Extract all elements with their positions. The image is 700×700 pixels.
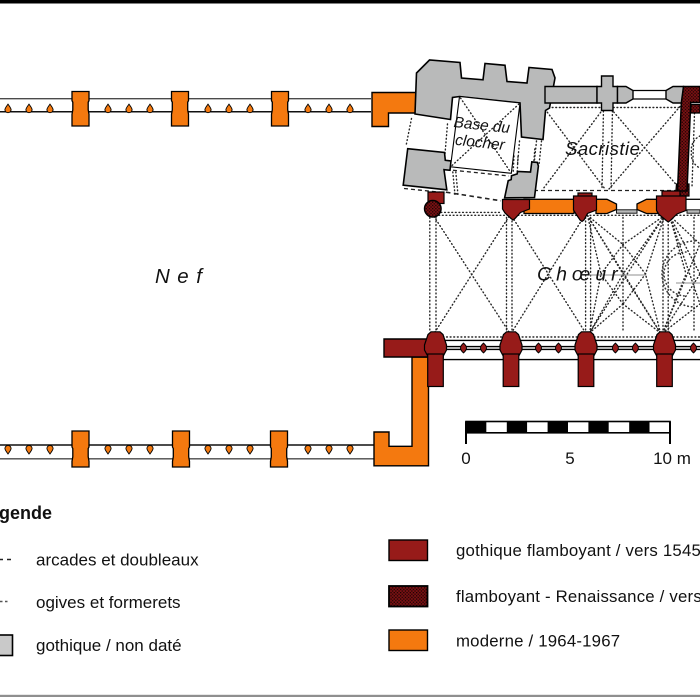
svg-text:Légende: Légende <box>0 503 52 523</box>
svg-text:5: 5 <box>565 449 574 468</box>
svg-text:Chœur: Chœur <box>537 264 623 286</box>
svg-text:0: 0 <box>461 449 470 468</box>
svg-text:Sacristie: Sacristie <box>565 138 640 159</box>
svg-text:10 m: 10 m <box>653 449 691 468</box>
svg-text:gothique flamboyant / vers 154: gothique flamboyant / vers 1545 <box>456 541 700 560</box>
svg-text:arcades et doubleaux: arcades et doubleaux <box>36 551 199 570</box>
svg-text:flamboyant - Renaissance / ver: flamboyant - Renaissance / vers 1550 <box>456 587 700 606</box>
svg-text:Nef: Nef <box>155 265 209 288</box>
svg-text:moderne / 1964-1967: moderne / 1964-1967 <box>456 632 620 651</box>
svg-text:gothique / non daté: gothique / non daté <box>36 636 182 655</box>
svg-text:ogives et formerets: ogives et formerets <box>36 593 181 612</box>
